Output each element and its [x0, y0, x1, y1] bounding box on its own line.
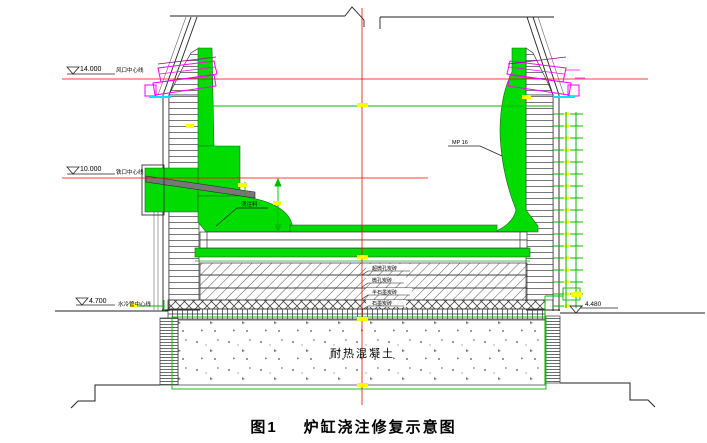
caption-prefix: 图1: [250, 416, 277, 437]
pad-white-bands: [200, 232, 527, 248]
elevation-foundation: 4.480: [585, 301, 602, 308]
bottom-layers: [160, 261, 560, 385]
caption-title: 炉缸浇注修复示意图: [304, 416, 457, 437]
taphole-block: [145, 168, 198, 212]
figure-caption: 图1炉缸浇注修复示意图: [0, 416, 707, 437]
label-tuyere-line: 风口中心线: [116, 66, 144, 74]
label-cooling-line: 水冷管中心线: [118, 300, 152, 308]
label-concrete: 耐热混凝土: [330, 346, 395, 360]
cad-canvas: 14.000 风口中心线 10.000 铁口中心线 4.700 水冷管中心线 4…: [0, 0, 707, 443]
elevation-cooling: 4.700: [89, 298, 107, 305]
elevation-taphole: 10.000: [80, 166, 102, 173]
elevation-tuyere: 14.000: [80, 66, 102, 73]
furnace-repair-drawing: 14.000 风口中心线 10.000 铁口中心线 4.700 水冷管中心线 4…: [0, 0, 707, 443]
label-stave-grade: MP 16: [452, 140, 468, 146]
label-taphole-line: 铁口中心线: [116, 168, 144, 176]
grout-ladder: [553, 112, 583, 308]
label-castable: 浇注料: [241, 200, 258, 208]
